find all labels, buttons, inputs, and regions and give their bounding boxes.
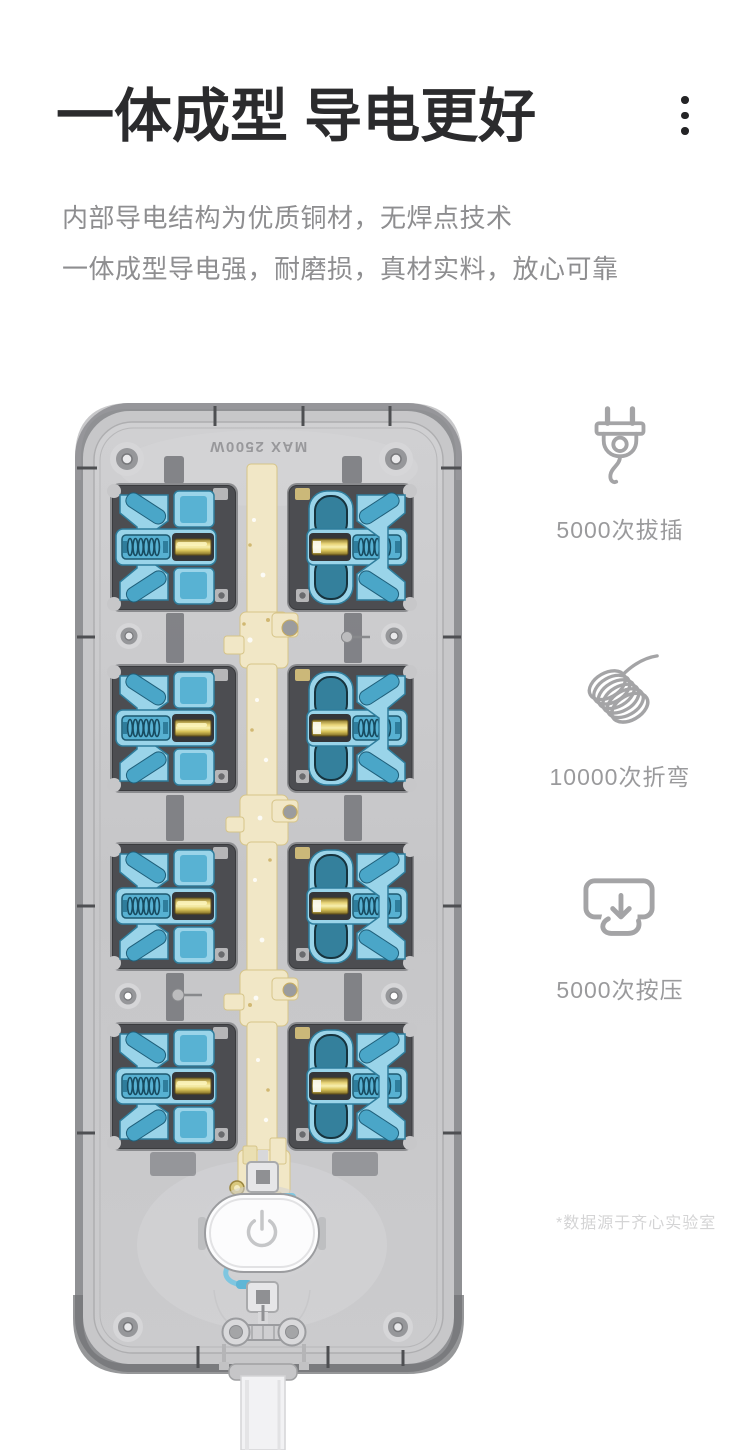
socket-module xyxy=(287,483,417,612)
feature-plug-cycles: 5000次拔插 xyxy=(538,406,702,545)
socket-module xyxy=(107,664,238,793)
feature-label: 5000次按压 xyxy=(538,971,702,1005)
socket-module xyxy=(107,483,238,612)
footnote: *数据源于齐心实验室 xyxy=(556,1209,716,1233)
socket-module xyxy=(107,842,238,971)
feature-press-cycles: 5000次按压 xyxy=(538,876,702,1005)
coil-wire-icon xyxy=(576,650,664,736)
press-icon xyxy=(581,876,659,950)
socket-module xyxy=(287,664,417,793)
wattage-marking: MAX 2500W xyxy=(209,438,308,455)
feature-bend-cycles: 10000次折弯 xyxy=(538,650,702,792)
socket-module xyxy=(287,842,417,971)
socket-module xyxy=(287,1022,417,1151)
socket-module xyxy=(107,1022,238,1151)
plug-icon xyxy=(590,406,650,498)
feature-label: 10000次折弯 xyxy=(538,758,702,792)
feature-label: 5000次拔插 xyxy=(538,511,702,545)
power-cable xyxy=(229,1364,297,1450)
